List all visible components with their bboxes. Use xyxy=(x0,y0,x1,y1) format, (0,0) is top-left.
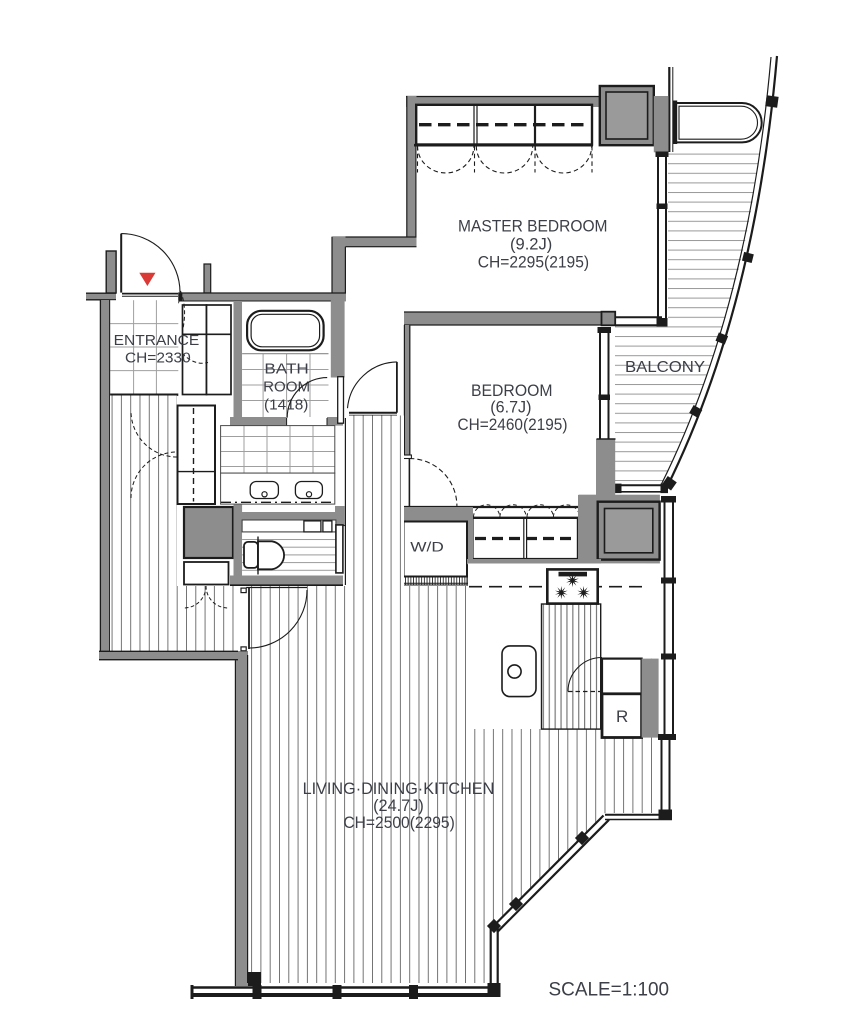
svg-text:(1418): (1418) xyxy=(264,398,308,414)
svg-text:W/D: W/D xyxy=(410,539,444,555)
svg-text:BATH: BATH xyxy=(264,362,308,378)
svg-text:SCALE=1:100: SCALE=1:100 xyxy=(549,980,670,1001)
svg-text:ENTRANCE: ENTRANCE xyxy=(114,333,200,349)
svg-text:ROOM: ROOM xyxy=(263,380,310,396)
svg-text:MASTER BEDROOM: MASTER BEDROOM xyxy=(458,217,608,236)
svg-text:(9.2J): (9.2J) xyxy=(510,235,552,254)
svg-text:(6.7J): (6.7J) xyxy=(490,398,531,417)
svg-text:CH=2500(2295): CH=2500(2295) xyxy=(343,813,454,832)
svg-text:R: R xyxy=(616,707,628,726)
svg-text:CH=2460(2195): CH=2460(2195) xyxy=(458,415,568,434)
svg-text:CH=2295(2195): CH=2295(2195) xyxy=(478,253,589,272)
svg-text:CH=2330: CH=2330 xyxy=(125,351,191,367)
svg-text:BALCONY: BALCONY xyxy=(625,359,705,376)
